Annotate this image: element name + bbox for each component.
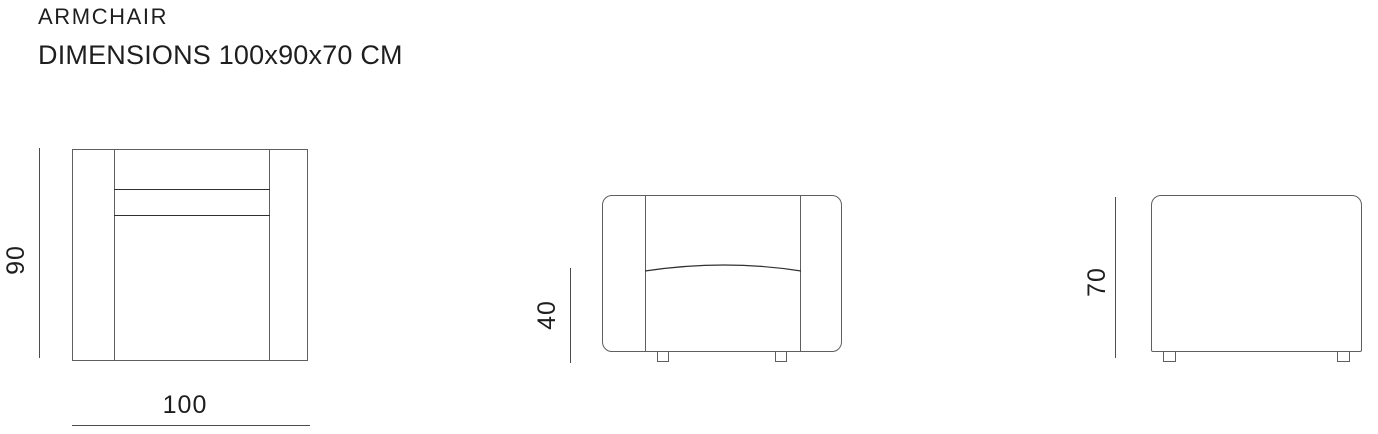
depth-dimension-line [39,148,40,358]
top-view-backrest-front-line [114,189,270,190]
height-dimension-label: 70 [1082,252,1112,312]
seat-height-dimension-label: 40 [532,285,562,345]
width-dimension-label: 100 [155,390,215,420]
front-view-seat-cushion-curve [603,196,843,353]
side-view: 70 [1060,190,1378,380]
depth-dimension-label: 90 [1,230,31,290]
product-title: ARMCHAIR [38,4,168,30]
side-view-left-foot [1163,351,1176,362]
seat-height-dimension-line [570,268,571,363]
side-view-right-foot [1337,351,1350,362]
front-view-body-outline [602,195,842,352]
height-dimension-line [1115,197,1116,358]
front-view-right-foot [775,351,787,362]
armchair-spec-sheet: ARMCHAIR DIMENSIONS 100x90x70 CM 90 100 … [0,0,1378,434]
side-view-body-outline [1151,195,1362,352]
top-view-body-outline [72,149,308,361]
front-view: 40 [515,190,860,380]
top-view-right-armrest-line [269,150,270,360]
front-view-left-armrest-line [645,196,646,351]
top-view-backrest-seat-line [114,215,270,216]
width-dimension-line [72,425,310,426]
top-view-left-armrest-line [114,150,115,360]
product-dimensions-subtitle: DIMENSIONS 100x90x70 CM [38,40,403,71]
front-view-left-foot [657,351,669,362]
top-view: 90 100 [2,140,332,434]
front-view-right-armrest-line [800,196,801,351]
